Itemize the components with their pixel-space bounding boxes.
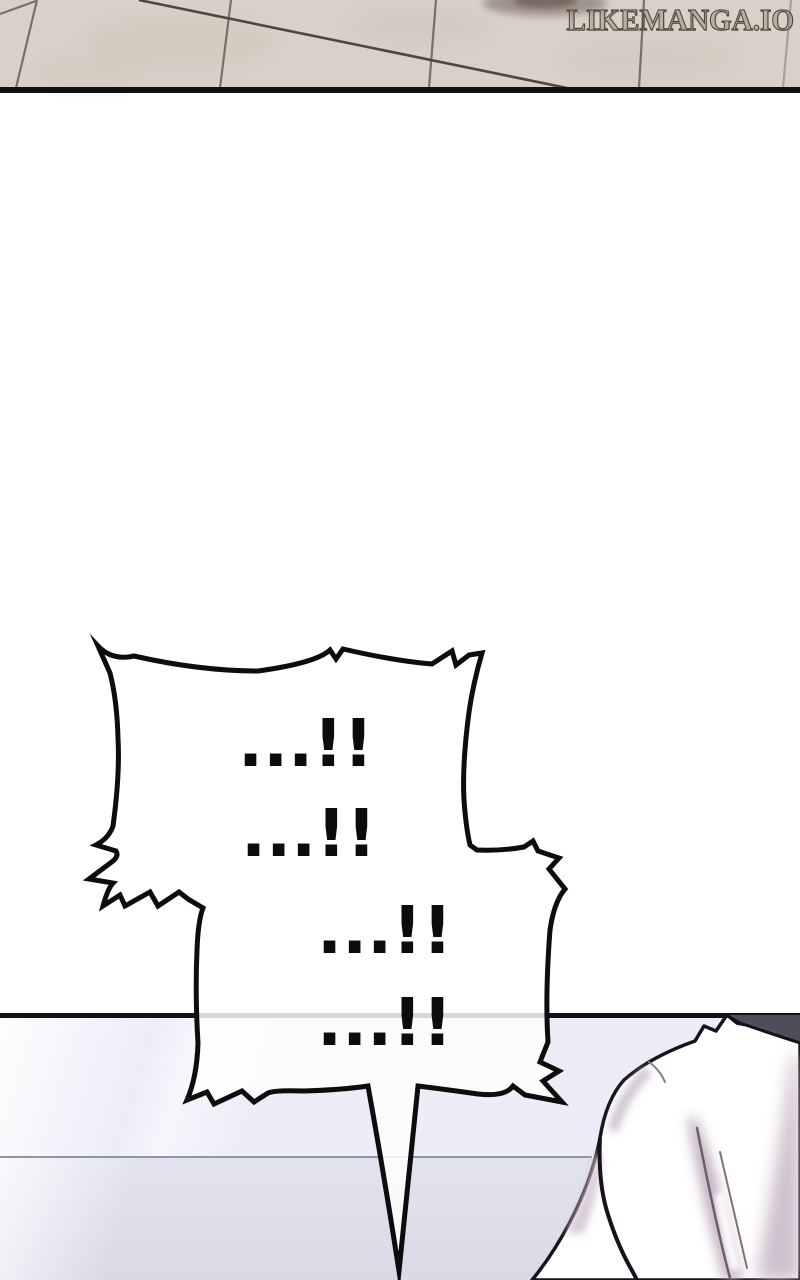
lower-panel-shadow-floor: [0, 1158, 800, 1280]
bubble-text-line: ...!!: [317, 898, 452, 964]
top-panel-bottom-border: [0, 87, 800, 93]
tile-diagonal-grout-line: [139, 0, 567, 88]
manga-page: LikeManga.Io ...!! ...!! ...!! ...!!: [0, 0, 800, 1280]
site-watermark: LikeManga.Io: [567, 4, 794, 35]
bubble-text-line: ...!!: [317, 990, 452, 1056]
bubble-text-line: ...!!: [238, 711, 373, 777]
bubble-text-line: ...!!: [241, 801, 376, 867]
